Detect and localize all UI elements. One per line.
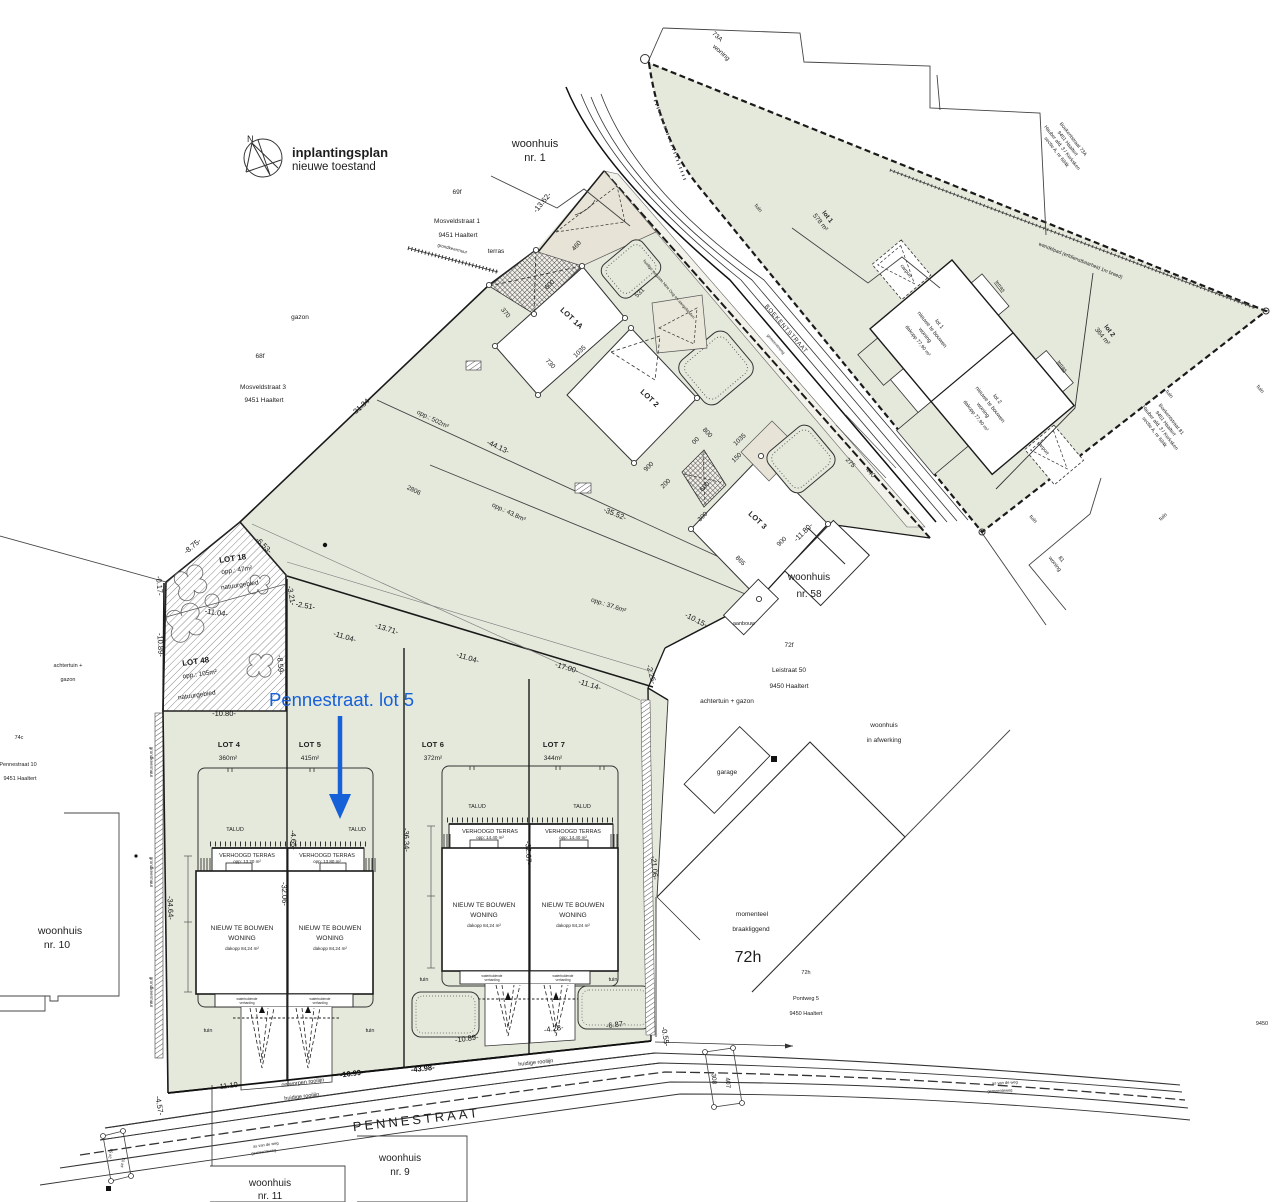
svg-text:372m²: 372m² — [424, 755, 443, 762]
svg-text:terras: terras — [488, 248, 505, 255]
svg-text:woonhuis: woonhuis — [378, 1153, 421, 1164]
svg-text:LOT 7: LOT 7 — [543, 740, 565, 749]
svg-text:verharding: verharding — [239, 1001, 254, 1005]
svg-text:TALUD: TALUD — [348, 827, 366, 833]
svg-text:nieuwe toestand: nieuwe toestand — [292, 161, 376, 173]
svg-text:Pennestraat 10: Pennestraat 10 — [0, 762, 37, 768]
svg-text:NIEUW TE BOUWEN: NIEUW TE BOUWEN — [299, 925, 362, 932]
svg-text:opp: 13.20 m²: opp: 13.20 m² — [233, 859, 261, 864]
svg-text:360m²: 360m² — [219, 755, 238, 762]
svg-text:dakopp 84,24 m²: dakopp 84,24 m² — [467, 923, 501, 928]
svg-text:verharding: verharding — [312, 1001, 327, 1005]
svg-text:-10.89-: -10.89- — [155, 633, 165, 658]
svg-text:opp: 13.80 m²: opp: 13.80 m² — [313, 859, 341, 864]
svg-text:woonhuis: woonhuis — [869, 722, 898, 729]
svg-text:inplantingsplan: inplantingsplan — [292, 145, 388, 160]
svg-text:69f: 69f — [452, 189, 461, 196]
svg-text:-34.64-: -34.64- — [165, 896, 175, 921]
svg-text:momenteel: momenteel — [736, 911, 769, 918]
svg-text:9451 Haaltert: 9451 Haaltert — [3, 776, 36, 782]
svg-text:9450 Haaltert: 9450 Haaltert — [769, 683, 808, 690]
svg-text:Mosveldstraat 3: Mosveldstraat 3 — [240, 384, 286, 391]
svg-text:NIEUW TE BOUWEN: NIEUW TE BOUWEN — [453, 902, 516, 909]
svg-text:74c: 74c — [15, 735, 24, 741]
svg-text:verharding: verharding — [555, 978, 570, 982]
svg-text:verharding: verharding — [484, 978, 499, 982]
svg-text:NIEUW TE BOUWEN: NIEUW TE BOUWEN — [211, 925, 274, 932]
svg-text:72h: 72h — [735, 949, 762, 966]
svg-text:-32.67-: -32.67- — [524, 841, 534, 866]
svg-text:TALUD: TALUD — [468, 804, 486, 810]
svg-text:achtertuin +: achtertuin + — [54, 663, 83, 669]
svg-text:gazon: gazon — [61, 677, 76, 683]
svg-text:68f: 68f — [255, 353, 264, 360]
svg-text:woonhuis: woonhuis — [37, 925, 82, 937]
svg-text:-4.65-: -4.65- — [289, 830, 299, 850]
svg-text:407: 407 — [724, 1077, 732, 1089]
svg-text:72h: 72h — [801, 970, 810, 976]
svg-text:-0.17-: -0.17- — [154, 576, 165, 597]
svg-text:Pennestraat. lot 5: Pennestraat. lot 5 — [269, 689, 414, 710]
svg-text:tuin: tuin — [609, 977, 618, 983]
svg-text:LOT 6: LOT 6 — [422, 740, 444, 749]
svg-text:9451 Haaltert: 9451 Haaltert — [244, 397, 283, 404]
svg-text:nr. 10: nr. 10 — [44, 939, 70, 951]
svg-text:in afwerking: in afwerking — [867, 737, 902, 744]
svg-text:grondkeermuur: grondkeermuur — [149, 747, 154, 778]
svg-text:nr. 9: nr. 9 — [390, 1167, 410, 1178]
svg-text:-32.06-: -32.06- — [280, 882, 290, 907]
svg-text:-10.80-: -10.80- — [212, 709, 236, 718]
svg-text:opp: 14.40 m²: opp: 14.40 m² — [559, 835, 587, 840]
svg-text:WONING: WONING — [470, 912, 497, 919]
svg-text:nr. 1: nr. 1 — [524, 152, 545, 164]
svg-text:woonhuis: woonhuis — [248, 1178, 291, 1189]
svg-text:Leistraat 50: Leistraat 50 — [772, 667, 806, 674]
svg-text:WONING: WONING — [559, 912, 586, 919]
svg-text:TALUD: TALUD — [573, 804, 591, 810]
svg-text:dakopp 84,24 m²: dakopp 84,24 m² — [556, 923, 590, 928]
svg-text:braakliggend: braakliggend — [732, 926, 770, 933]
svg-text:415m²: 415m² — [301, 755, 320, 762]
svg-text:opp: 14.40 m²: opp: 14.40 m² — [476, 835, 504, 840]
svg-text:grondkeermuur: grondkeermuur — [149, 977, 154, 1008]
svg-text:9450: 9450 — [1256, 1021, 1268, 1027]
svg-text:woonhuis: woonhuis — [511, 138, 559, 150]
svg-text:LOT 4: LOT 4 — [218, 740, 241, 749]
svg-text:NIEUW TE BOUWEN: NIEUW TE BOUWEN — [542, 902, 605, 909]
svg-text:achtertuin + gazon: achtertuin + gazon — [700, 698, 754, 705]
svg-text:dakopp 84,24 m²: dakopp 84,24 m² — [313, 946, 347, 951]
svg-text:tuin: tuin — [420, 977, 429, 983]
svg-text:Mosveldstraat 1: Mosveldstraat 1 — [434, 218, 480, 225]
svg-text:-36.34-: -36.34- — [402, 828, 412, 853]
svg-text:9451 Haaltert: 9451 Haaltert — [438, 232, 477, 239]
svg-text:gazon: gazon — [291, 314, 309, 321]
svg-text:woonhuis: woonhuis — [787, 572, 830, 583]
svg-text:nr. 58: nr. 58 — [796, 589, 821, 600]
svg-text:TALUD: TALUD — [226, 827, 244, 833]
svg-text:aanbouw: aanbouw — [733, 621, 755, 627]
svg-text:garage: garage — [717, 769, 738, 776]
svg-text:LOT 5: LOT 5 — [299, 740, 321, 749]
svg-text:WONING: WONING — [228, 935, 255, 942]
svg-text:tuin: tuin — [204, 1028, 213, 1034]
svg-text:tuin: tuin — [366, 1028, 375, 1034]
svg-text:-8.59-: -8.59- — [275, 655, 286, 676]
svg-text:grondkeermuur: grondkeermuur — [149, 857, 154, 888]
svg-text:WONING: WONING — [316, 935, 343, 942]
svg-text:Pontweg 5: Pontweg 5 — [793, 996, 819, 1002]
svg-text:dakopp 84,24 m²: dakopp 84,24 m² — [225, 946, 259, 951]
svg-text:nr. 11: nr. 11 — [258, 1191, 283, 1202]
svg-text:9450 Haaltert: 9450 Haaltert — [789, 1011, 822, 1017]
svg-text:72f: 72f — [784, 642, 793, 649]
svg-text:N: N — [247, 134, 254, 144]
svg-text:308: 308 — [710, 1073, 718, 1085]
svg-text:344m²: 344m² — [544, 755, 563, 762]
